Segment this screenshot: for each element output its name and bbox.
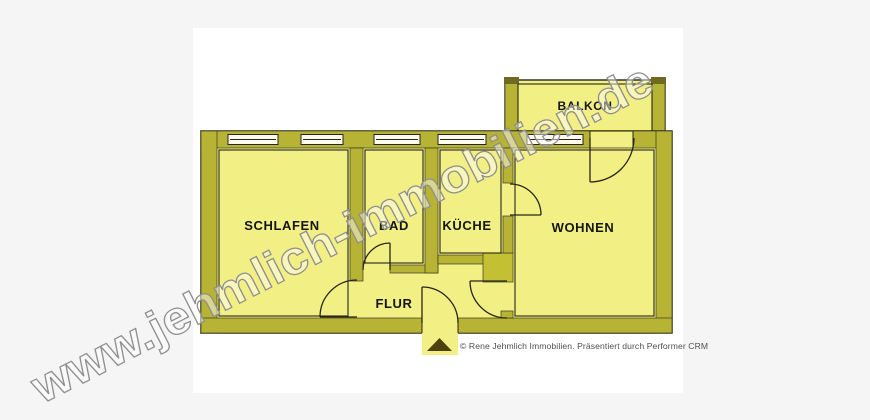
wall-bottom-right	[458, 318, 672, 333]
wall-kueche-bottom	[438, 255, 486, 264]
wall-bottom-left	[201, 318, 422, 333]
wall-flur-wohnen-stub	[501, 311, 513, 318]
window	[374, 135, 420, 145]
balcony-door-opening	[590, 132, 633, 148]
wall-right	[656, 131, 672, 333]
credit-text: © Rene Jehmlich Immobilien. Präsentiert …	[460, 341, 708, 351]
balcony-wall-cap	[651, 77, 666, 84]
window	[228, 135, 278, 145]
balcony-wall-cap	[504, 77, 519, 84]
room-label-flur: FLUR	[375, 296, 412, 311]
wall-kueche-wohnen-mid	[503, 216, 513, 253]
floor-plan-svg: SCHLAFEN BAD KÜCHE WOHNEN FLUR BALKON ww…	[0, 0, 870, 420]
entrance-opening	[422, 318, 458, 333]
room-label-wohnen: WOHNEN	[552, 220, 615, 235]
wall-duct-block	[483, 253, 513, 282]
floor-plan-page: SCHLAFEN BAD KÜCHE WOHNEN FLUR BALKON ww…	[0, 0, 870, 420]
room-label-kueche: KÜCHE	[442, 218, 491, 233]
window	[301, 135, 343, 145]
